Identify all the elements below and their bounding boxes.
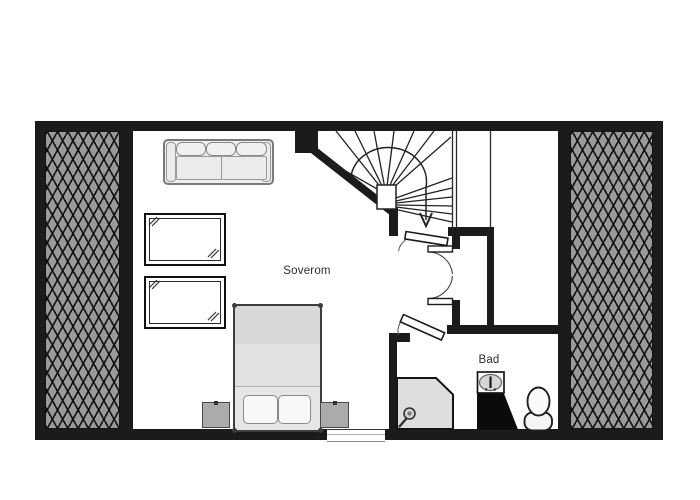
stair-exit-door-swing-arc — [399, 240, 406, 251]
washbasin-tap-dot — [494, 388, 496, 390]
stair-newel-post — [377, 185, 396, 209]
bathroom-door-stub — [389, 333, 410, 342]
stair-side-wall-vertical — [389, 207, 398, 236]
bed-sheet — [235, 344, 320, 387]
bed-post — [232, 303, 237, 308]
shower-head-icon — [404, 408, 415, 419]
roof-window-frame — [149, 218, 221, 261]
stair-treads-lower-fan — [394, 178, 452, 222]
bed-duvet — [235, 306, 320, 345]
double-bed — [233, 304, 322, 432]
bathroom-top-wall — [447, 325, 558, 334]
roof-window-upper — [144, 213, 226, 266]
chimney-block — [295, 131, 318, 153]
closet-left-stub-bottom — [452, 300, 460, 327]
nightstand-knob — [214, 401, 218, 405]
sofa-seat-cushion — [176, 156, 222, 180]
toilet-bowl — [528, 388, 550, 416]
bathroom-left-wall — [389, 333, 397, 429]
floor-plan-canvas: Soverom Bad — [0, 0, 700, 500]
window-glass-line — [327, 434, 385, 435]
bed-post — [318, 303, 323, 308]
inner-wall-left — [120, 129, 133, 429]
closet-door-leaf-bottom — [428, 299, 453, 305]
bathroom-label: Bad — [469, 354, 509, 366]
roof-window-lower — [144, 276, 226, 329]
outer-wall-left — [35, 121, 45, 440]
washbasin-bowl — [480, 375, 502, 391]
bed-post — [318, 428, 323, 433]
stair-down-arrow-icon — [420, 213, 432, 226]
stair-walkline-arc — [351, 147, 427, 187]
bed-pillow-right — [278, 395, 311, 424]
inner-wall-right — [558, 129, 570, 429]
sofa-back-cushion — [176, 142, 206, 156]
stair-exit-door-leaf — [405, 232, 448, 246]
roof-slope-hatch-right — [570, 131, 653, 429]
bedroom-label: Soverom — [267, 265, 347, 277]
sofa-seat-cushion — [221, 156, 267, 180]
roof-window-frame — [149, 281, 221, 324]
window-bottom-wall — [327, 429, 385, 442]
closet-left-stub-top — [452, 228, 460, 249]
nightstand-knob — [333, 401, 337, 405]
roof-slope-hatch-left — [45, 131, 120, 429]
sofa-back-cushion — [206, 142, 236, 156]
sofa — [163, 139, 274, 185]
closet-right-wall — [487, 227, 494, 330]
stair-diagonal-wall — [311, 148, 395, 214]
washbasin-counter — [478, 372, 505, 393]
sofa-back-cushion — [236, 142, 267, 156]
shower — [397, 378, 453, 429]
nightstand-left — [202, 402, 230, 428]
toilet-base — [525, 413, 553, 431]
shower-head-handle — [400, 419, 407, 427]
nightstand-right — [320, 402, 349, 428]
bed-post — [232, 428, 237, 433]
closet-door-swing-arc — [428, 252, 453, 274]
stair-treads-upper-fan — [328, 131, 451, 194]
bed-pillow-left — [243, 395, 278, 424]
sofa-arm-left — [166, 142, 176, 182]
shower-head-center — [408, 412, 412, 416]
washbasin-tap-dot — [485, 388, 487, 390]
vanity-cabinet — [477, 393, 518, 430]
outer-wall-right — [653, 121, 663, 440]
closet-door-swing-arc — [428, 276, 453, 299]
closet-door-leaf-top — [428, 246, 453, 252]
